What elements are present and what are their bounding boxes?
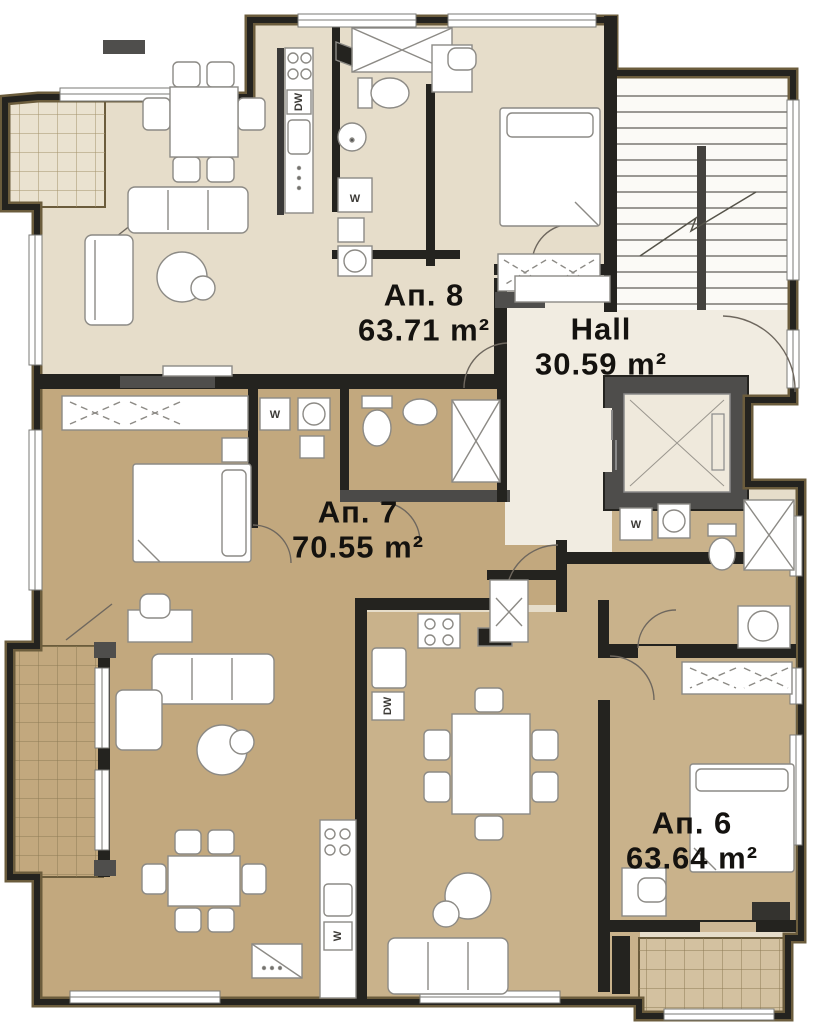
coffee-table bbox=[191, 276, 215, 300]
room-name: Ап. 7 bbox=[292, 495, 424, 530]
tv-stand bbox=[163, 366, 232, 376]
elevator-door-opening bbox=[600, 408, 612, 472]
dining-table bbox=[168, 856, 240, 906]
chair bbox=[207, 157, 234, 182]
sofa bbox=[128, 187, 248, 233]
bathroom-sink bbox=[748, 611, 778, 641]
dining-table bbox=[170, 87, 238, 157]
room-name: Ап. 6 bbox=[626, 806, 758, 841]
washer-label: W bbox=[270, 409, 281, 421]
cabinet bbox=[338, 218, 364, 242]
nightstand bbox=[222, 438, 248, 462]
hall-cabinet bbox=[515, 276, 610, 302]
washer-label: W bbox=[332, 930, 344, 941]
chair bbox=[242, 864, 266, 894]
chair bbox=[175, 830, 201, 854]
chair bbox=[140, 594, 170, 618]
chair bbox=[238, 98, 265, 130]
stove bbox=[418, 614, 460, 648]
chair bbox=[475, 688, 503, 712]
sofa bbox=[388, 938, 508, 994]
chair bbox=[424, 772, 450, 802]
chair bbox=[208, 830, 234, 854]
wardrobe bbox=[682, 662, 792, 694]
pillow bbox=[222, 470, 246, 556]
balcony-left bbox=[10, 646, 103, 877]
elevator bbox=[600, 376, 748, 510]
balcony-bottom-right bbox=[639, 938, 788, 1016]
chair bbox=[208, 908, 234, 932]
room-area: 63.64 m² bbox=[626, 841, 758, 876]
room-name: Hall bbox=[535, 312, 667, 347]
room-name: Ап. 8 bbox=[358, 278, 490, 313]
chair bbox=[142, 864, 166, 894]
toilet bbox=[709, 538, 735, 570]
armchair bbox=[85, 235, 133, 325]
chair bbox=[532, 772, 558, 802]
cabinet bbox=[300, 436, 324, 458]
chair bbox=[638, 878, 666, 902]
balcony-top-left bbox=[5, 100, 105, 207]
bathroom-sink bbox=[403, 399, 437, 425]
floor-plan: W W W W DW DW Ап. 8 63.71 m² Hall 30.59 … bbox=[0, 0, 822, 1024]
bathroom-sink bbox=[338, 123, 366, 151]
washer-label: W bbox=[631, 519, 642, 531]
washer-label: W bbox=[350, 193, 361, 205]
room-area: 63.71 m² bbox=[358, 313, 490, 348]
pillow bbox=[696, 769, 788, 791]
toilet bbox=[363, 410, 391, 446]
room-label-apt6: Ап. 6 63.64 m² bbox=[626, 806, 758, 875]
chair bbox=[475, 816, 503, 840]
dining-table bbox=[452, 714, 530, 814]
toilet-tank bbox=[362, 396, 392, 408]
room-label-apt8: Ап. 8 63.71 m² bbox=[358, 278, 490, 347]
toilet-tank bbox=[358, 78, 372, 108]
room-label-hall: Hall 30.59 m² bbox=[535, 312, 667, 381]
chair bbox=[207, 62, 234, 87]
armchair bbox=[116, 690, 162, 750]
kitchen-sink bbox=[372, 648, 406, 688]
toilet-tank bbox=[708, 524, 736, 536]
room-area: 30.59 m² bbox=[535, 347, 667, 382]
dishwasher-label: DW bbox=[293, 92, 305, 111]
dishwasher-label: DW bbox=[382, 696, 394, 715]
chair bbox=[532, 730, 558, 760]
pillow bbox=[507, 113, 593, 137]
coffee-table bbox=[230, 730, 254, 754]
chair bbox=[173, 157, 200, 182]
sofa bbox=[152, 654, 274, 704]
elevator-bench bbox=[712, 414, 724, 470]
chair bbox=[173, 62, 200, 87]
chair bbox=[424, 730, 450, 760]
chair bbox=[448, 48, 476, 70]
room-area: 70.55 m² bbox=[292, 530, 424, 565]
toilet bbox=[371, 78, 409, 108]
chair bbox=[175, 908, 201, 932]
coffee-table bbox=[433, 901, 459, 927]
room-label-apt7: Ап. 7 70.55 m² bbox=[292, 495, 424, 564]
chair bbox=[143, 98, 170, 130]
